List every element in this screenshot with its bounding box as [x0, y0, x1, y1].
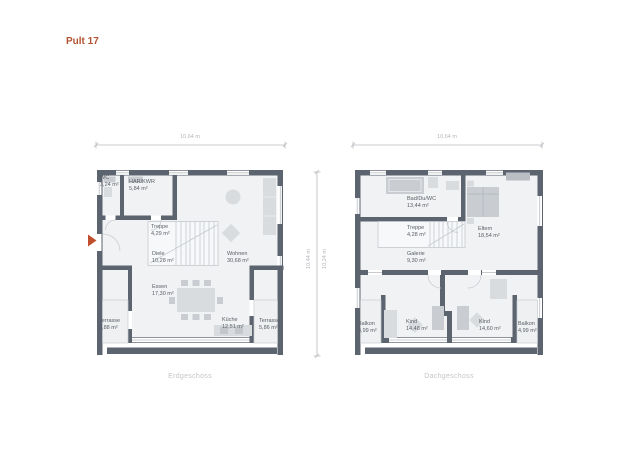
dining-table: [177, 288, 215, 312]
room-label-wc: WC 3,24 m²: [100, 175, 119, 189]
dimension-height-right: 10,24 m: [322, 244, 328, 274]
room-label-eltern: Eltern 18,54 m²: [478, 226, 500, 240]
dimension-width-eg: 10,64 m: [160, 134, 220, 140]
room-name: Eltern: [478, 226, 500, 233]
room-label-kind-links: Kind 14,48 m²: [406, 319, 428, 333]
room-name: Terrasse: [259, 318, 280, 325]
page-title: Pult 17: [66, 36, 99, 47]
room-label-balkon-links: Balkon 4,99 m²: [358, 321, 377, 335]
room-name: Treppe: [407, 225, 426, 232]
room-label-terrasse-links: Terrasse 5,88 m²: [99, 318, 120, 332]
dg-front-step: [365, 348, 537, 355]
floorplan-page: Pult 17 10,64 m 10,64 m 10,44 m 10,24 m …: [0, 0, 636, 449]
bath-toilet: [428, 177, 438, 188]
room-area: 14,48 m²: [406, 326, 428, 333]
room-area: 5,88 m²: [99, 325, 120, 332]
room-name: Balkon: [358, 321, 377, 328]
room-area: 13,44 m²: [407, 203, 436, 210]
room-label-galerie: Galerie 9,30 m²: [407, 251, 426, 265]
entrance-arrow-icon: [88, 235, 97, 247]
room-area: 4,99 m²: [518, 328, 537, 335]
room-label-bad: Bad/Du/WC 13,44 m²: [407, 196, 436, 210]
nightstand: [467, 218, 474, 224]
child-bed: [384, 310, 397, 338]
room-area: 9,30 m²: [407, 258, 426, 265]
child-bed: [490, 279, 507, 299]
room-label-wohnen: Wohnen 30,68 m²: [227, 251, 249, 265]
room-name: Küche: [222, 317, 244, 324]
child-wardrobe: [432, 306, 444, 330]
round-table: [226, 190, 241, 205]
room-name: Wohnen: [227, 251, 249, 258]
room-label-treppe-dg: Treppe 4,28 m²: [407, 225, 426, 239]
dimension-height-left: 10,44 m: [306, 244, 312, 274]
floor-caption-erdgeschoss: Erdgeschoss: [150, 373, 230, 380]
room-name: Balkon: [518, 321, 537, 328]
room-area: 17,30 m²: [152, 291, 174, 298]
room-name: HAR/KWR: [129, 179, 155, 186]
room-name: WC: [100, 175, 119, 182]
floorplan-drawing: [0, 0, 636, 449]
room-label-kind-rechts: Kind 14,60 m²: [479, 319, 501, 333]
room-area: 10,28 m²: [152, 258, 174, 265]
floorplan-dachgeschoss: [355, 170, 543, 355]
room-area: 5,86 m²: [259, 325, 280, 332]
room-label-diele: Diele 10,28 m²: [152, 251, 174, 265]
child-wardrobe: [457, 306, 469, 330]
room-name: Essen: [152, 284, 174, 291]
room-name: Kind: [406, 319, 428, 326]
room-label-essen: Essen 17,30 m²: [152, 284, 174, 298]
room-area: 18,54 m²: [478, 233, 500, 240]
room-area: 5,84 m²: [129, 186, 155, 193]
room-name: Bad/Du/WC: [407, 196, 436, 203]
room-name: Diele: [152, 251, 174, 258]
sideboard: [263, 178, 276, 235]
dimension-width-dg: 10,64 m: [417, 134, 477, 140]
room-area: 4,28 m²: [407, 232, 426, 239]
room-name: Kind: [479, 319, 501, 326]
room-name: Galerie: [407, 251, 426, 258]
floor-caption-dachgeschoss: Dachgeschoss: [409, 373, 489, 380]
room-label-kueche: Küche 12,51 m²: [222, 317, 244, 331]
room-area: 4,29 m²: [151, 231, 170, 238]
room-name: Treppe: [151, 224, 170, 231]
room-label-har-kwr: HAR/KWR 5,84 m²: [129, 179, 155, 193]
room-area: 12,51 m²: [222, 324, 244, 331]
room-label-balkon-rechts: Balkon 4,99 m²: [518, 321, 537, 335]
eg-front-step: [107, 348, 277, 355]
room-label-treppe-eg: Treppe 4,29 m²: [151, 224, 170, 238]
room-area: 3,24 m²: [100, 182, 119, 189]
room-name: Terrasse: [99, 318, 120, 325]
room-area: 30,68 m²: [227, 258, 249, 265]
room-label-terrasse-rechts: Terrasse 5,86 m²: [259, 318, 280, 332]
nightstand: [467, 181, 474, 187]
parents-wardrobe: [506, 173, 530, 181]
room-area: 14,60 m²: [479, 326, 501, 333]
bath-sink: [446, 181, 459, 190]
room-area: 4,99 m²: [358, 328, 377, 335]
